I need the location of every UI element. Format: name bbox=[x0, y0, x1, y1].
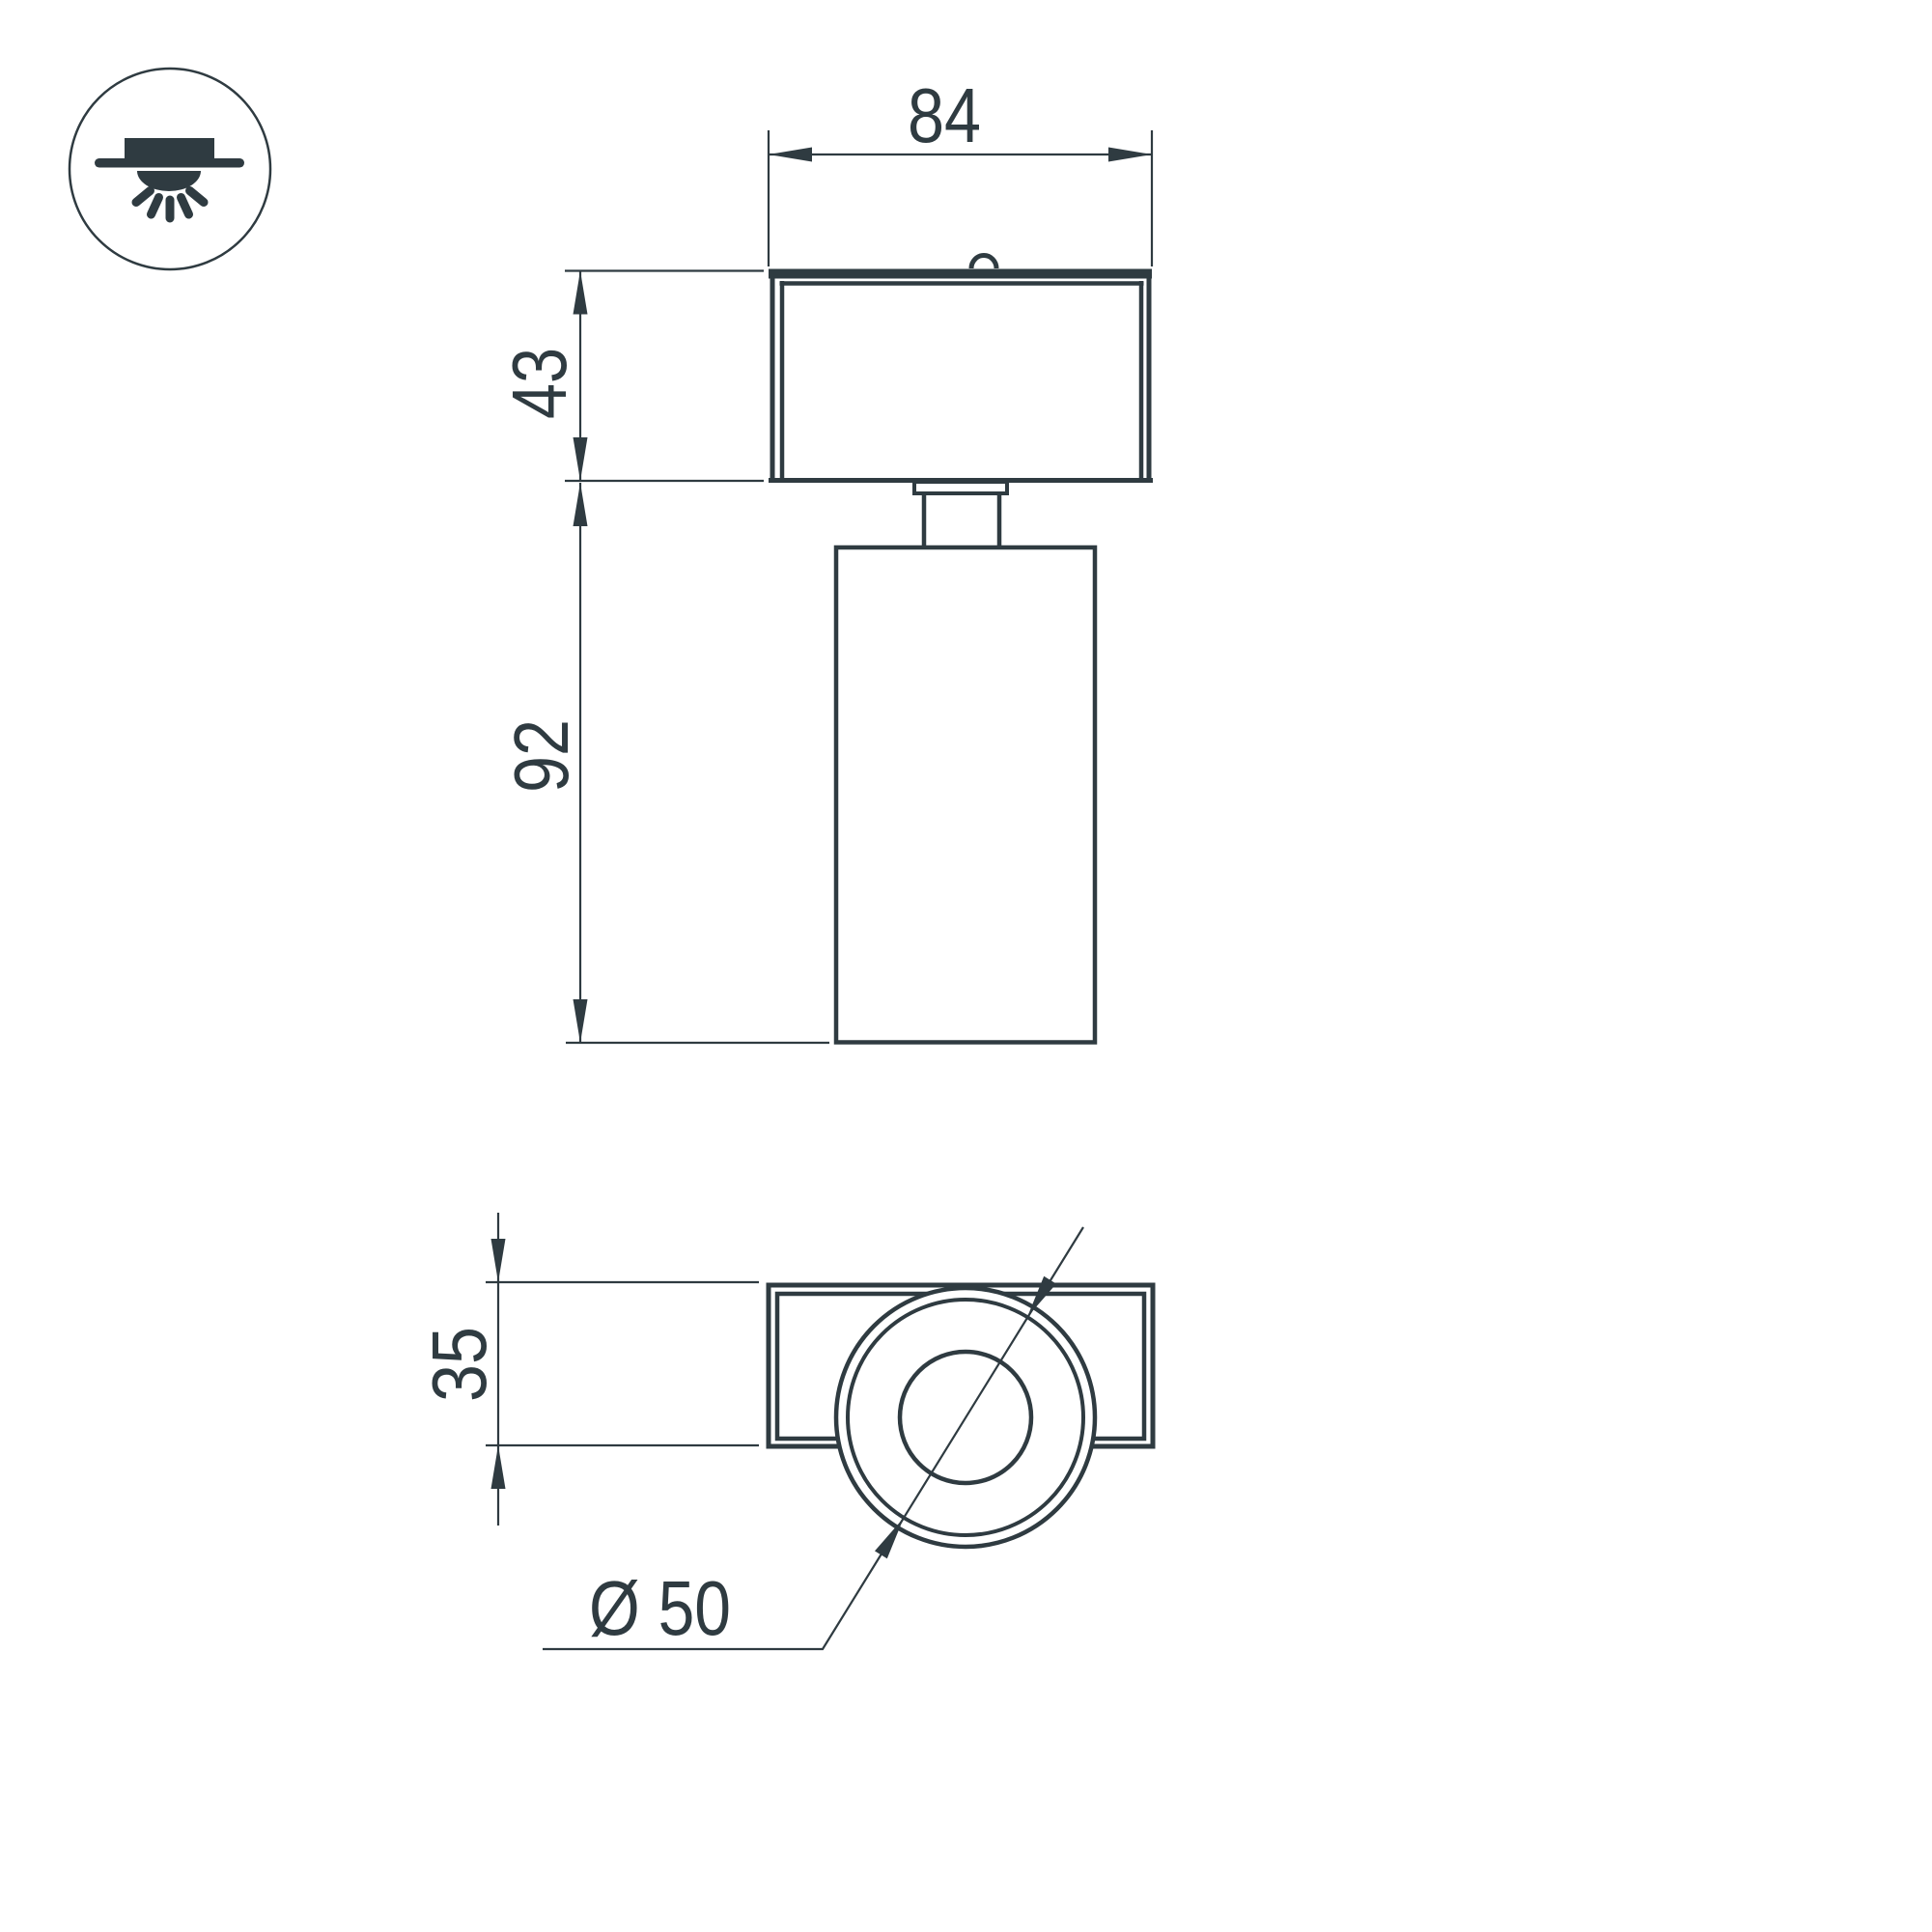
dimension-35: 35 bbox=[416, 1213, 759, 1526]
ceiling-surface-light-icon bbox=[95, 138, 244, 218]
hanging-loop bbox=[971, 256, 996, 269]
dimension-43: 43 bbox=[496, 271, 764, 482]
pivot-joint bbox=[914, 482, 1007, 546]
housing-box bbox=[769, 256, 1153, 481]
dimension-84: 84 bbox=[769, 72, 1152, 266]
dim-label-35: 35 bbox=[416, 1327, 502, 1402]
cylinder-body bbox=[836, 547, 1095, 1043]
dim-label-diameter: Ø 50 bbox=[589, 1565, 731, 1651]
light-rays-icon bbox=[136, 191, 204, 219]
front-view bbox=[769, 256, 1153, 1043]
dimension-92: 92 bbox=[498, 483, 829, 1043]
bottom-view bbox=[769, 1285, 1153, 1547]
drawing-canvas: 84 43 92 35 Ø 50 bbox=[0, 0, 1932, 1932]
dim-label-43: 43 bbox=[496, 348, 582, 419]
mount-type-icon bbox=[70, 69, 270, 269]
dimension-drawing-svg: 84 43 92 35 Ø 50 bbox=[0, 0, 1932, 1932]
icon-circle bbox=[70, 69, 270, 269]
dim-label-92: 92 bbox=[498, 719, 584, 793]
dim-label-84: 84 bbox=[908, 72, 981, 158]
